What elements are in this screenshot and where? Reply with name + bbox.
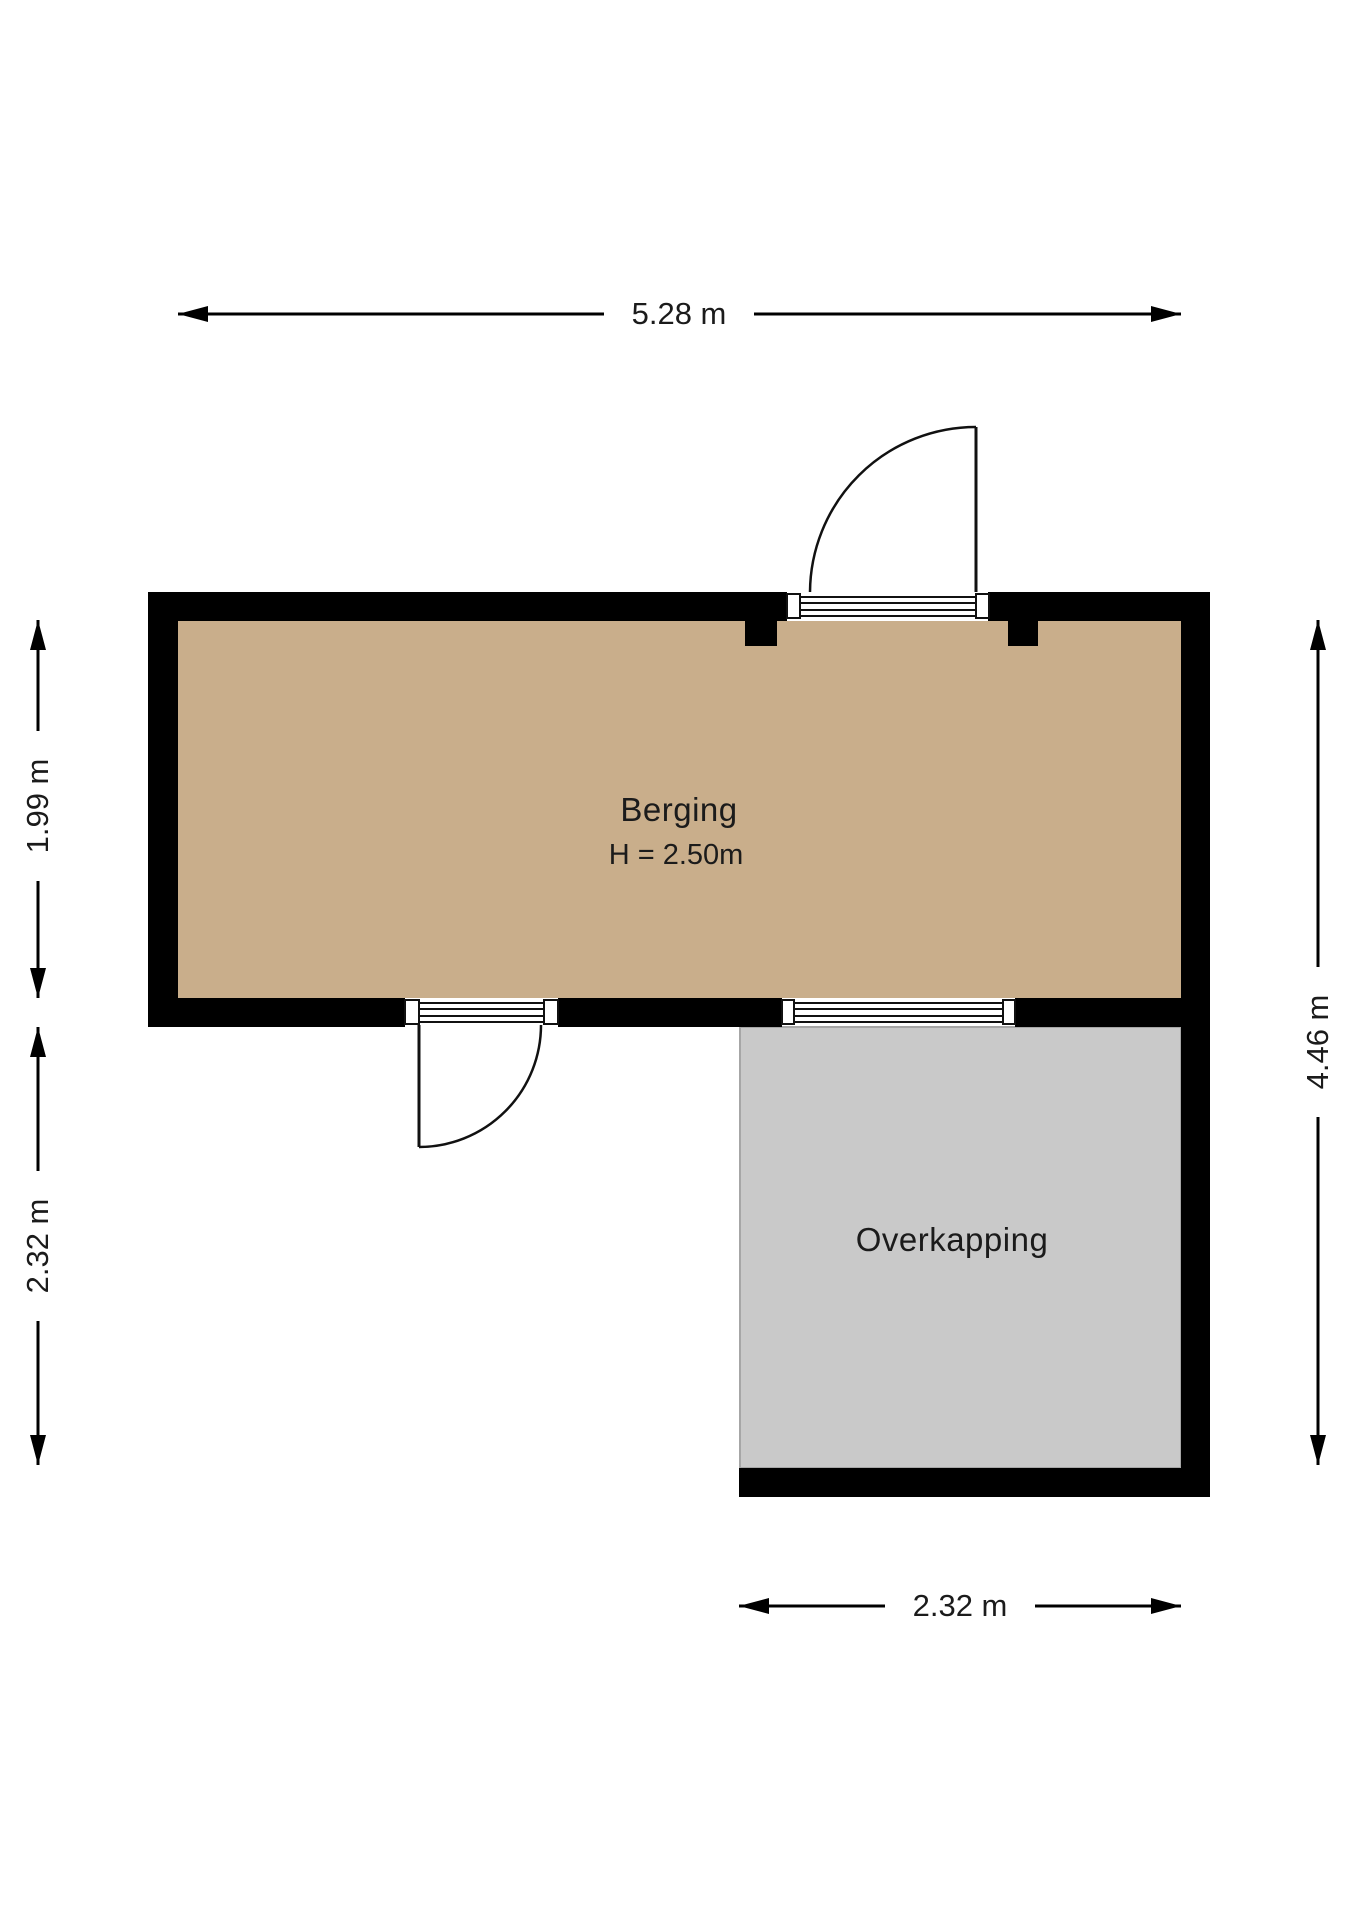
top-door-sill bbox=[787, 594, 989, 618]
top-door-swing-arc bbox=[810, 427, 976, 592]
floorplan-drawing bbox=[0, 0, 1358, 1920]
window-post-right bbox=[1003, 1000, 1015, 1024]
wall-left bbox=[148, 592, 178, 1025]
window-frame bbox=[794, 1003, 1003, 1022]
wall-bottom-left-segment bbox=[148, 998, 405, 1027]
dim-label-overkapping-width: 2.32 m bbox=[885, 1584, 1035, 1628]
pier-right-of-top-door bbox=[1008, 621, 1038, 646]
bottom-door-post-right bbox=[544, 1000, 558, 1024]
room-height-label-berging: H = 2.50m bbox=[476, 836, 876, 874]
arrowhead-up bbox=[1310, 620, 1326, 650]
wall-bottom-middle-segment bbox=[558, 998, 782, 1027]
bottom-door-post-left bbox=[405, 1000, 419, 1024]
arrowhead-right bbox=[1151, 306, 1181, 322]
top-door bbox=[810, 427, 976, 592]
dim-label-total-depth: 4.46 m bbox=[1296, 967, 1340, 1117]
wall-top-left-segment bbox=[148, 592, 787, 621]
dim-label-berging-depth: 1.99 m bbox=[16, 731, 60, 881]
top-door-post-left bbox=[787, 594, 800, 618]
overkapping-bottom-edge bbox=[739, 1468, 1210, 1497]
arrowhead-left bbox=[739, 1598, 769, 1614]
arrowhead-down bbox=[1310, 1435, 1326, 1465]
dim-label-overkapping-depth: 2.32 m bbox=[16, 1171, 60, 1321]
room-label-overkapping: Overkapping bbox=[752, 1218, 1152, 1262]
pier-left-of-top-door bbox=[745, 621, 777, 646]
bottom-door bbox=[419, 1025, 541, 1147]
window bbox=[782, 1000, 1015, 1024]
arrowhead-down bbox=[30, 968, 46, 998]
arrowhead-down bbox=[30, 1435, 46, 1465]
dim-label-top-width: 5.28 m bbox=[604, 292, 754, 336]
top-door-sill-frame bbox=[800, 597, 977, 616]
top-door-post-right bbox=[976, 594, 989, 618]
bottom-door-sill-frame bbox=[419, 1003, 544, 1022]
bottom-door-swing-arc bbox=[419, 1025, 541, 1147]
room-label-berging: Berging bbox=[479, 788, 879, 832]
wall-right bbox=[1181, 592, 1210, 1497]
floorplan-canvas: Berging H = 2.50m Overkapping 5.28 m 1.9… bbox=[0, 0, 1358, 1920]
arrowhead-right bbox=[1151, 1598, 1181, 1614]
arrowhead-up bbox=[30, 620, 46, 650]
arrowhead-up bbox=[30, 1027, 46, 1057]
arrowhead-left bbox=[178, 306, 208, 322]
bottom-door-sill bbox=[405, 1000, 558, 1024]
window-post-left bbox=[782, 1000, 794, 1024]
wall-bottom-right-segment bbox=[1015, 998, 1181, 1027]
wall-top-right-segment bbox=[988, 592, 1210, 621]
